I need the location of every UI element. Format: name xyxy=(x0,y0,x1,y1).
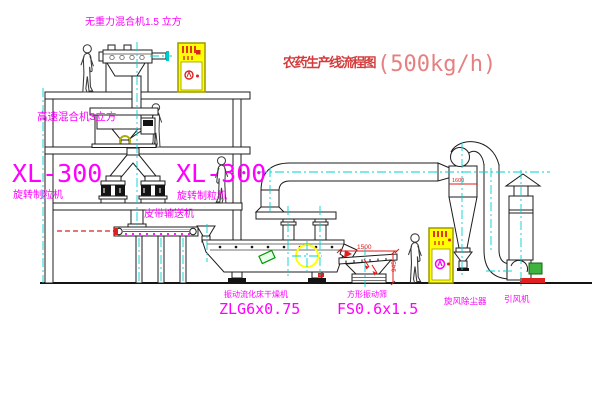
label-granulator-name-left: 旋转制粒机 xyxy=(13,188,63,201)
exhaust-duct xyxy=(261,163,452,207)
granulator-left xyxy=(99,181,127,203)
label-cyclone: 旋风除尘器 xyxy=(444,296,487,306)
label-dryer-name: 振动流化床干燥机 xyxy=(224,289,288,299)
fan-base xyxy=(520,278,545,283)
granulator-right xyxy=(139,181,167,203)
label-granulator-model-left: XL-300 xyxy=(12,159,102,188)
page-title-capacity: (500kg/h) xyxy=(377,52,496,77)
label-gravity-mixer: 无重力混合机1.5 立方 xyxy=(85,15,182,28)
vibrating-sieve xyxy=(339,254,397,283)
induced-draft-fan xyxy=(507,260,545,283)
label-high-speed-mixer: 高速混合机3立方 xyxy=(37,110,116,123)
worker-figure-ground xyxy=(409,234,422,283)
cyclone-separator xyxy=(449,142,511,279)
exhaust-stack xyxy=(506,174,540,260)
control-cabinet-bottom xyxy=(429,228,453,283)
fluid-bed-dryer xyxy=(202,207,357,283)
label-sieve-name: 方形振动筛 xyxy=(347,289,387,299)
label-fan: 引风机 xyxy=(504,294,530,304)
label-belt-conveyor: 皮带输送机 xyxy=(144,207,194,220)
label-granulator-model-right: XL-300 xyxy=(176,159,266,188)
label-sieve-model: FS0.6x1.5 xyxy=(337,300,418,318)
label-granulator-name-right: 旋转制粒机 xyxy=(177,189,227,202)
dim-sieve-length: 1500 xyxy=(357,244,372,251)
dim-sieve-height: 945 xyxy=(391,261,398,272)
label-dryer-model: ZLG6x0.75 xyxy=(219,300,300,318)
rain-cap xyxy=(506,174,540,186)
cad-flow-diagram: 无重力混合机1.5 立方 高速混合机3立方 XL-300 旋转制粒机 XL-30… xyxy=(0,0,600,403)
worker-figure-top-floor xyxy=(81,45,93,92)
gravity-free-mixer xyxy=(99,45,169,112)
dim-cyclone-level: 1600 xyxy=(452,178,464,184)
belt-conveyor xyxy=(114,227,198,283)
fan-motor xyxy=(529,263,542,274)
page-title: 农药生产线流程图 xyxy=(282,55,377,70)
control-cabinet-top xyxy=(178,43,205,92)
